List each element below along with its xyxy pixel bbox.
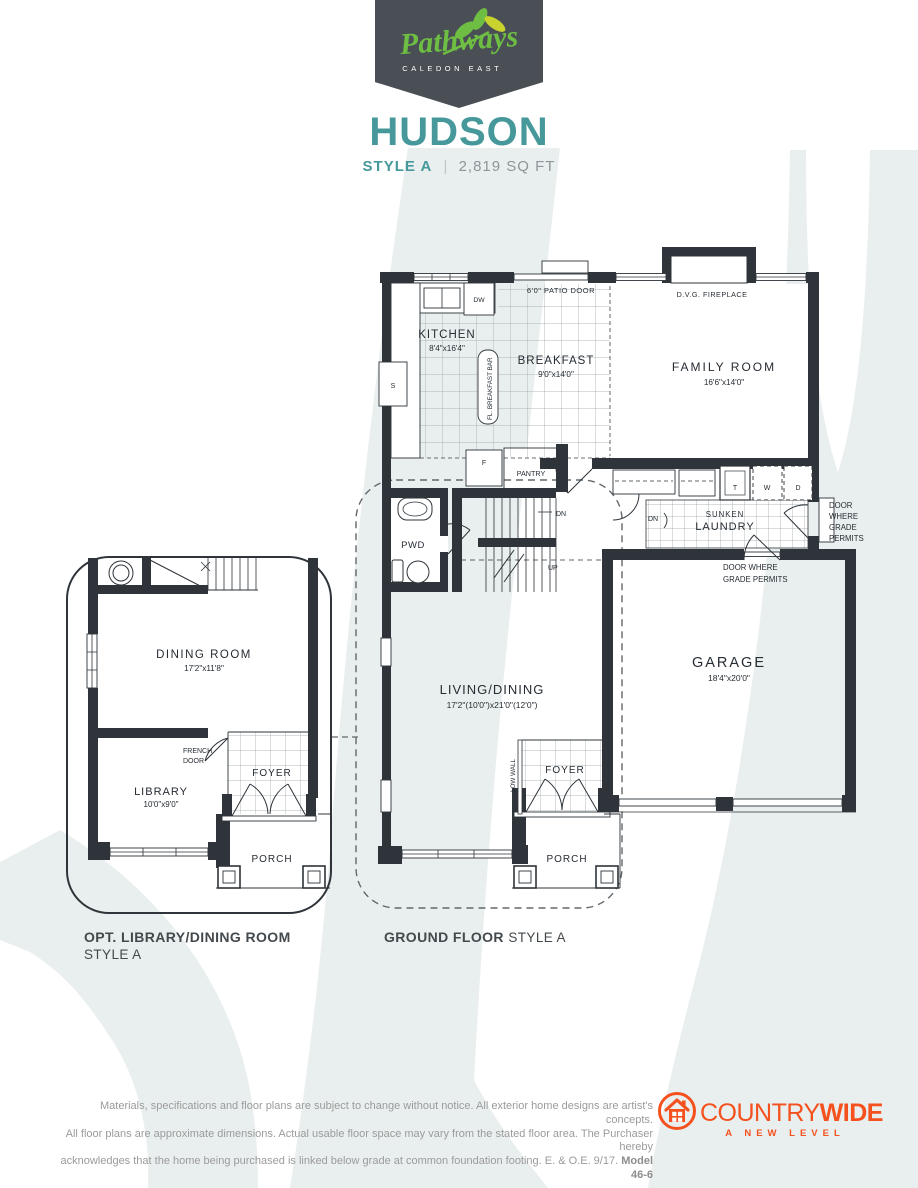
model-reference: Model 46-6 [621,1155,653,1181]
stairs-dn-label: DN [556,511,566,518]
brand-country: COUNTRY [700,1099,820,1127]
countrywide-wordmark: COUNTRYWIDE [700,1099,883,1128]
countrywide-tagline: A NEW LEVEL [710,1128,860,1139]
fridge-label: F [482,460,486,467]
library-label: LIBRARY [134,786,188,798]
tub-label: T [733,485,738,492]
dishwasher-label: DW [473,297,485,304]
sqft-label: 2,819 SQ FT [459,158,556,175]
low-wall-label: LOW WALL [510,758,517,792]
garage-dim: 18'4"x20'0" [708,673,750,683]
kitchen-dim: 8'4"x16'4" [429,344,465,353]
french-door-label-1: FRENCH [183,748,212,755]
garage-label: GARAGE [692,655,766,671]
style-separator: | [437,158,455,175]
porch-pillar-right [596,866,618,888]
ground-floor-plan: 6'0" PATIO DOOR DW S KITCHEN 8'4"x16'4" … [350,235,880,935]
dryer-label: D [795,485,800,492]
side-door-grade-4: PERMITS [829,534,864,543]
library-dim: 10'0"x9'0" [144,800,179,809]
washer-label: W [764,485,771,492]
breakfast-label: BREAKFAST [518,355,595,367]
laundry-dn-label: DN [648,516,658,523]
porch-label: PORCH [546,854,587,865]
ground-floor-caption-title: GROUND FLOOR [384,929,504,945]
laundry-label-2: LAUNDRY [695,521,754,533]
patio-step [542,261,588,273]
breakfast-dim: 9'0"x14'0" [538,370,574,379]
disclaimer-line-1: Materials, specifications and floor plan… [57,1100,653,1128]
stairs-up-label: UP [548,565,558,572]
garage-door-grade-2: GRADE PERMITS [723,575,788,584]
flyer-page: Pathways CALEDON EAST HUDSON STYLE A | 2… [0,0,918,1188]
opt-porch-pillar-left [218,866,240,888]
porch-pillar-left [514,866,536,888]
french-door-label-2: DOOR [183,758,204,765]
dryer [784,466,812,500]
kitchen-label: KITCHEN [418,329,475,341]
option-caption-style: STYLE A [84,947,142,962]
countrywide-house-icon [656,1090,698,1132]
pwd-label: PWD [401,540,425,551]
family-room-dim: 16'6"x14'0" [704,378,744,387]
living-dining-dim: 17'2"(10'0")x21'0"(12'0") [447,700,538,710]
pantry-label: PANTRY [517,469,546,478]
opt-foyer-label: FOYER [252,768,291,779]
disclaimer-line-2: All floor plans are approximate dimensio… [57,1128,653,1156]
countrywide-logo: COUNTRYWIDE A NEW LEVEL [656,1090,886,1132]
foyer-label: FOYER [545,765,584,776]
foyer-tiles [522,740,606,814]
low-wall [518,740,522,814]
breakfast-bar-label: FL. BREAKFAST BAR [487,357,494,420]
style-line: STYLE A | 2,819 SQ FT [159,158,759,175]
dining-room-label: DINING ROOM [156,649,252,661]
toilet-tank [392,560,403,582]
family-room-label: FAMILY ROOM [672,360,776,374]
brand-subtitle: CALEDON EAST [375,64,530,73]
washer [753,466,782,500]
option-floor-masks [98,560,326,886]
option-caption-title: OPT. LIBRARY/DINING ROOM [84,929,291,945]
fireplace [662,247,756,283]
fireplace-label: D.V.G. FIREPLACE [677,290,748,299]
brand-script-wordmark: Pathways [374,18,544,64]
patio-door-label: 6'0" PATIO DOOR [527,286,595,295]
brand-wide: WIDE [820,1099,883,1127]
dining-room-dim: 17'2"x11'8" [184,664,224,673]
toilet-bowl [407,561,429,583]
disclaimer: Materials, specifications and floor plan… [57,1100,653,1183]
laundry-label-1: SUNKEN [706,510,745,519]
ground-floor-caption-style: STYLE A [508,930,566,945]
side-door-grade-3: GRADE [829,523,857,532]
opt-porch-label: PORCH [251,854,292,865]
garage-door-grade-1: DOOR WHERE [723,563,778,572]
side-door-grade-2: WHERE [829,512,858,521]
stair-break-lines [494,550,524,582]
opt-porch-pillar-right [303,866,325,888]
option-caption: OPT. LIBRARY/DINING ROOM STYLE A [84,929,291,963]
ground-floor-caption: GROUND FLOOR STYLE A [384,929,566,947]
stair-risers-upper [486,498,550,538]
living-dining-label: LIVING/DINING [440,682,545,697]
model-title: HUDSON [159,110,759,155]
side-door-grade-1: DOOR [829,501,853,510]
style-label: STYLE A [363,158,433,175]
sink-label: S [391,383,396,390]
disclaimer-line-3: acknowledges that the home being purchas… [60,1155,621,1167]
option-plan: DINING ROOM 17'2"x11'8" LIBRARY 10'0"x9'… [55,550,350,975]
stair-risers-lower [486,547,550,592]
